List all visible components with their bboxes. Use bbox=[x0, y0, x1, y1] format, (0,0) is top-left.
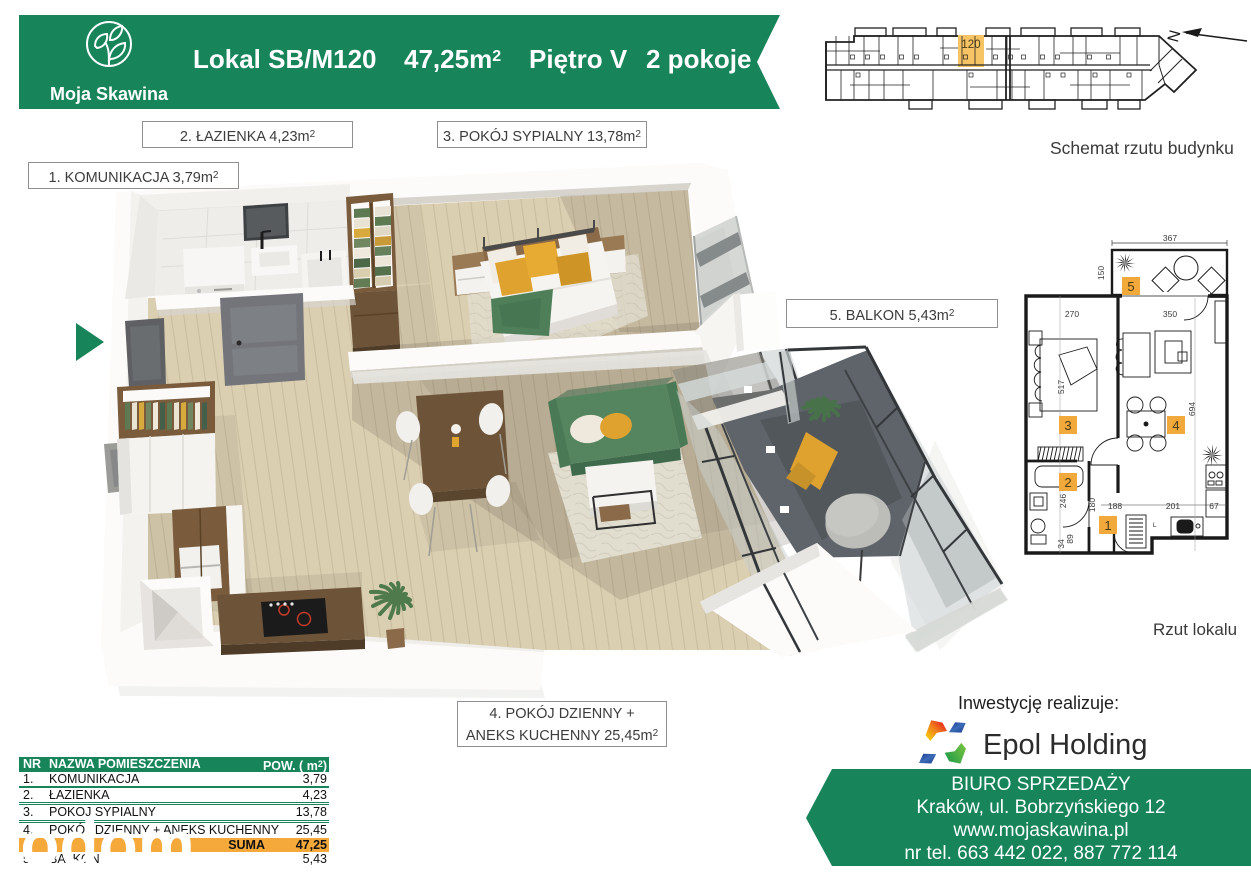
svg-text:5: 5 bbox=[1127, 279, 1134, 294]
svg-text:3: 3 bbox=[1064, 418, 1071, 433]
svg-text:2: 2 bbox=[1064, 475, 1071, 490]
svg-text:1: 1 bbox=[1104, 518, 1111, 533]
svg-text:150: 150 bbox=[1096, 266, 1106, 280]
svg-text:246: 246 bbox=[1058, 494, 1068, 508]
svg-text:350: 350 bbox=[1163, 309, 1177, 319]
svg-text:188: 188 bbox=[1108, 501, 1122, 511]
svg-text:367: 367 bbox=[1163, 235, 1177, 243]
svg-text:L: L bbox=[1153, 523, 1157, 529]
svg-text:517: 517 bbox=[1056, 380, 1066, 394]
svg-text:89: 89 bbox=[1065, 534, 1075, 544]
svg-text:270: 270 bbox=[1065, 309, 1079, 319]
svg-text:4: 4 bbox=[1172, 418, 1179, 433]
svg-text:180: 180 bbox=[1087, 498, 1097, 512]
svg-text:67: 67 bbox=[1209, 501, 1219, 511]
svg-text:694: 694 bbox=[1187, 402, 1197, 416]
svg-text:201: 201 bbox=[1166, 501, 1180, 511]
